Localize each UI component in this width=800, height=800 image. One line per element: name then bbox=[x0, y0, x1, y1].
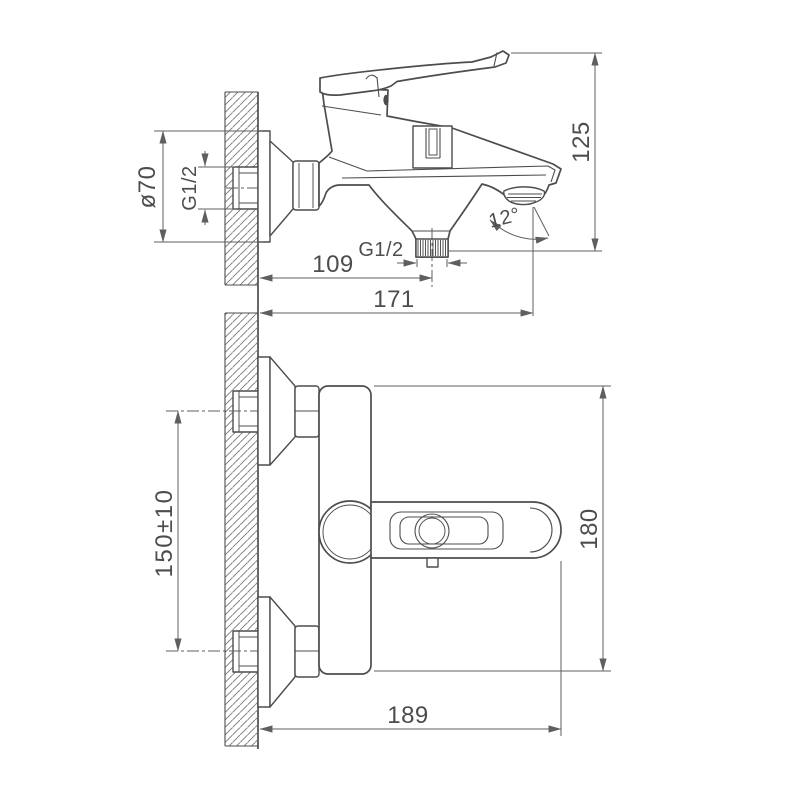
faucet-body-side bbox=[319, 88, 561, 257]
plan-view: 150±10 180 189 bbox=[151, 313, 611, 746]
dim-label-inlet-thread: G1/2 bbox=[179, 165, 201, 210]
dim-label-escutcheon-diameter: ø70 bbox=[134, 166, 161, 209]
dim-label-109: 109 bbox=[312, 251, 354, 278]
escutcheon-bottom bbox=[258, 597, 319, 707]
dim-label-shower-thread: G1/2 bbox=[358, 239, 403, 261]
dimension-inlet-spacing: 150±10 bbox=[151, 411, 178, 651]
dimension-wall-to-spout: 171 bbox=[260, 286, 533, 313]
handle-bar bbox=[371, 502, 561, 567]
spout-angle-annotation: 12° bbox=[486, 204, 549, 316]
inlet-nut-bottom bbox=[166, 631, 266, 672]
inlet-nut-top bbox=[166, 391, 266, 432]
handle-bar-tab bbox=[427, 558, 438, 567]
wall-section-plan bbox=[225, 313, 258, 746]
lever-pivot-dot bbox=[383, 95, 388, 105]
escutcheon-flange bbox=[258, 131, 270, 242]
dim-label-180: 180 bbox=[576, 508, 603, 550]
escutcheon-top bbox=[258, 357, 319, 465]
dimension-shower-thread: G1/2 bbox=[358, 239, 467, 267]
technical-drawing-canvas: 12° ø70 G1/2 109 171 bbox=[0, 0, 800, 800]
aerator bbox=[504, 187, 545, 205]
dim-label-189: 189 bbox=[387, 702, 429, 729]
dim-label-150: 150±10 bbox=[151, 489, 178, 578]
dim-label-spout-angle: 12° bbox=[486, 204, 522, 233]
dim-label-125: 125 bbox=[568, 121, 595, 163]
dim-label-171: 171 bbox=[373, 286, 415, 313]
drawing-page: 12° ø70 G1/2 109 171 bbox=[0, 0, 800, 800]
escutcheon-side bbox=[258, 131, 319, 242]
connector-nut bbox=[293, 161, 319, 210]
escutcheon-cone bbox=[270, 141, 293, 236]
dimension-wall-to-shower-outlet: 109 bbox=[260, 228, 432, 287]
diverter-knob bbox=[413, 126, 452, 168]
wall-hatch bbox=[225, 313, 258, 746]
